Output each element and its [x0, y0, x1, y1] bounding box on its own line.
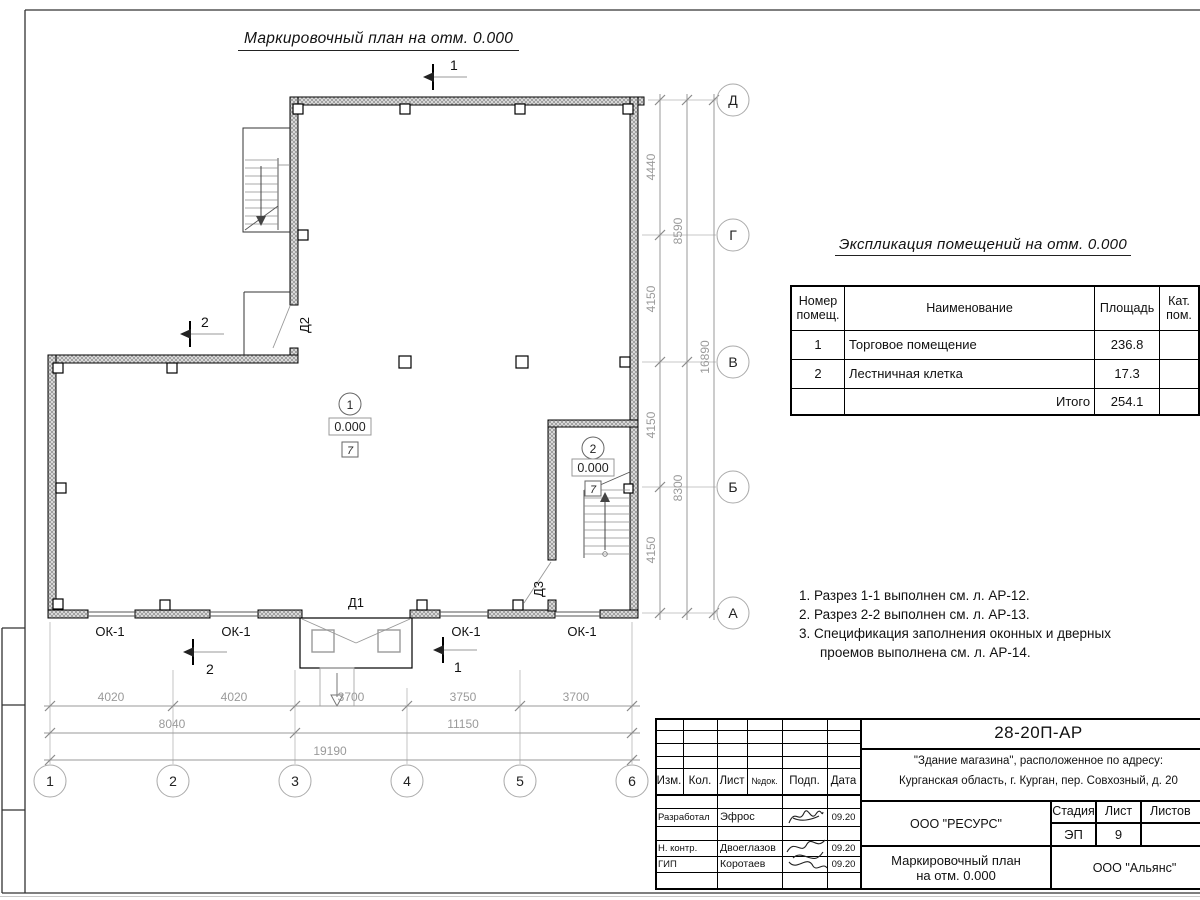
note-line-3: 3. Спецификация заполнения оконных и две… [799, 624, 1111, 643]
note-line-4: проемов выполнена см. л. АР-14. [799, 643, 1111, 662]
dim-va: 8300 [671, 474, 685, 501]
table-total-row: Итого 254.1 [791, 388, 1199, 415]
dim-text-right: 4440 4150 4150 4150 8590 8300 16890 [644, 153, 712, 563]
row-1-area: 236.8 [1095, 330, 1160, 359]
date-ncontrol: 09.20 [827, 840, 860, 856]
date-gip: 09.20 [827, 856, 860, 872]
row-2-category [1160, 359, 1199, 388]
explication-table: Номер помещ. Наименование Площадь Кат. п… [790, 285, 1200, 416]
total-category-cell [1160, 388, 1199, 415]
name-ncontrol: Двоеглазов [717, 840, 785, 856]
drawing-title-line1: Маркировочный план [862, 848, 1050, 868]
room-markers: 1 0.000 7 2 0.000 7 [329, 393, 614, 496]
note-line-2: 2. Разрез 2-2 выполнен см. л. АР-13. [799, 605, 1111, 624]
sheets-header: Листов [1142, 800, 1200, 822]
axis-bubbles-right: Д Г В Б А [717, 84, 749, 629]
window-label-4: ОК-1 [567, 624, 596, 639]
dim-gv: 4150 [644, 285, 658, 312]
room-1-floor-type: 7 [347, 445, 354, 457]
section-1-bottom-label: 1 [454, 659, 462, 675]
dim-bottom-total: 19190 [313, 744, 347, 758]
document-number: 28-20П-АР [860, 718, 1200, 748]
designer-organization: ООО "РЕСУРС" [862, 802, 1050, 845]
header-list: Лист [717, 768, 747, 794]
room-2-number: 2 [590, 442, 597, 456]
project-address-line1: "Здание магазина", расположенное по адре… [860, 750, 1200, 772]
dim-23: 4020 [221, 690, 248, 704]
name-gip: Коротаев [717, 856, 785, 872]
axis-g: Г [729, 227, 737, 243]
section-1-top-label: 1 [450, 57, 458, 73]
note-line-1: 1. Разрез 1-1 выполнен см. л. АР-12. [799, 586, 1111, 605]
client-organization: ООО "Альянс" [1052, 847, 1200, 888]
drawing-title-line2: на отм. 0.000 [862, 868, 1050, 886]
section-marks: 1 2 2 1 [180, 57, 477, 677]
row-1-name: Торговое помещение [844, 330, 1094, 359]
explication-title-text: Экспликация помещений на отм. 0.000 [835, 236, 1131, 256]
role-ncontrol: Н. контр. [655, 840, 720, 856]
axis-1: 1 [46, 773, 54, 789]
signature-icon [783, 836, 829, 874]
dim-45: 3750 [450, 690, 477, 704]
dim-13: 8040 [159, 717, 186, 731]
axis-a: А [728, 605, 738, 621]
dim-dg: 4440 [644, 153, 658, 180]
dim-ba: 4150 [644, 536, 658, 563]
dim-vb: 4150 [644, 411, 658, 438]
dim-12: 4020 [98, 690, 125, 704]
axis-v: В [728, 354, 737, 370]
total-empty-cell [791, 388, 844, 415]
dim-56: 3700 [563, 690, 590, 704]
axis-4: 4 [403, 773, 411, 789]
title-block: Изм. Кол. Лист №док. Подп. Дата Разработ… [655, 718, 1200, 890]
section-2-left-label: 2 [201, 314, 209, 330]
axis-3: 3 [291, 773, 299, 789]
axis-d: Д [728, 92, 738, 108]
col-header-category: Кат. пом. [1160, 286, 1199, 330]
dim-right-total: 16890 [698, 340, 712, 374]
section-2-bottom-label: 2 [206, 661, 214, 677]
role-developer: Разработал [655, 808, 720, 826]
plan-title: Маркировочный план на отм. 0.000 [238, 30, 519, 51]
axis-6: 6 [628, 773, 636, 789]
vestibule [244, 292, 290, 355]
col-header-number: Номер помещ. [791, 286, 844, 330]
exterior-stair [243, 128, 290, 232]
axis-bubbles-bottom: 1 2 3 4 5 6 [34, 765, 648, 797]
door-d1-label: Д1 [348, 595, 364, 610]
header-data: Дата [827, 768, 860, 794]
notes-block: 1. Разрез 1-1 выполнен см. л. АР-12. 2. … [799, 586, 1111, 662]
signature-icon [785, 806, 825, 828]
window-label-2: ОК-1 [221, 624, 250, 639]
sheet-number: 9 [1097, 824, 1140, 845]
room-2-floor-type: 7 [590, 484, 597, 496]
row-2-area: 17.3 [1095, 359, 1160, 388]
col-header-area: Площадь [1095, 286, 1160, 330]
name-developer: Эфрос [717, 808, 785, 826]
room-2-elevation: 0.000 [577, 461, 608, 475]
sheet-header: Лист [1097, 800, 1140, 822]
date-developer: 09.20 [827, 808, 860, 826]
total-area: 254.1 [1095, 388, 1160, 415]
sheet-edge [0, 896, 1200, 897]
row-2-name: Лестничная клетка [844, 359, 1094, 388]
dim-36: 11150 [447, 717, 479, 731]
axis-b: Б [728, 479, 737, 495]
room-1-number: 1 [347, 398, 354, 412]
room-1-elevation: 0.000 [334, 420, 365, 434]
door-d2-label: Д2 [297, 317, 312, 333]
window-label-1: ОК-1 [95, 624, 124, 639]
header-kol: Кол. [683, 768, 717, 794]
header-ndoc: №док. [747, 768, 782, 794]
axis-2: 2 [169, 773, 177, 789]
explication-title: Экспликация помещений на отм. 0.000 [790, 236, 1176, 253]
header-izm: Изм. [655, 768, 683, 794]
project-address-line2: Курганская область, г. Курган, пер. Совх… [860, 770, 1200, 792]
row-1-number: 1 [791, 330, 844, 359]
extension-lines [50, 100, 716, 764]
table-row: 1 Торговое помещение 236.8 [791, 330, 1199, 359]
dim-text-bottom: 4020 4020 3700 3750 3700 8040 11150 1919… [98, 690, 590, 758]
col-header-name: Наименование [844, 286, 1094, 330]
dim-34: 3700 [338, 690, 365, 704]
row-1-category [1160, 330, 1199, 359]
total-label: Итого [844, 388, 1094, 415]
row-2-number: 2 [791, 359, 844, 388]
dimension-ticks [45, 95, 719, 765]
door-d3-label: Д3 [531, 581, 546, 597]
stage-header: Стадия [1052, 800, 1095, 822]
table-row: 2 Лестничная клетка 17.3 [791, 359, 1199, 388]
walls [48, 97, 644, 618]
axis-5: 5 [516, 773, 524, 789]
window-label-3: ОК-1 [451, 624, 480, 639]
header-podp: Подп. [782, 768, 827, 794]
dim-dv: 8590 [671, 217, 685, 244]
stage-value: ЭП [1052, 824, 1095, 845]
role-gip: ГИП [655, 856, 720, 872]
drawing-sheet: 4440 4150 4150 4150 8590 8300 16890 4020… [0, 0, 1200, 900]
